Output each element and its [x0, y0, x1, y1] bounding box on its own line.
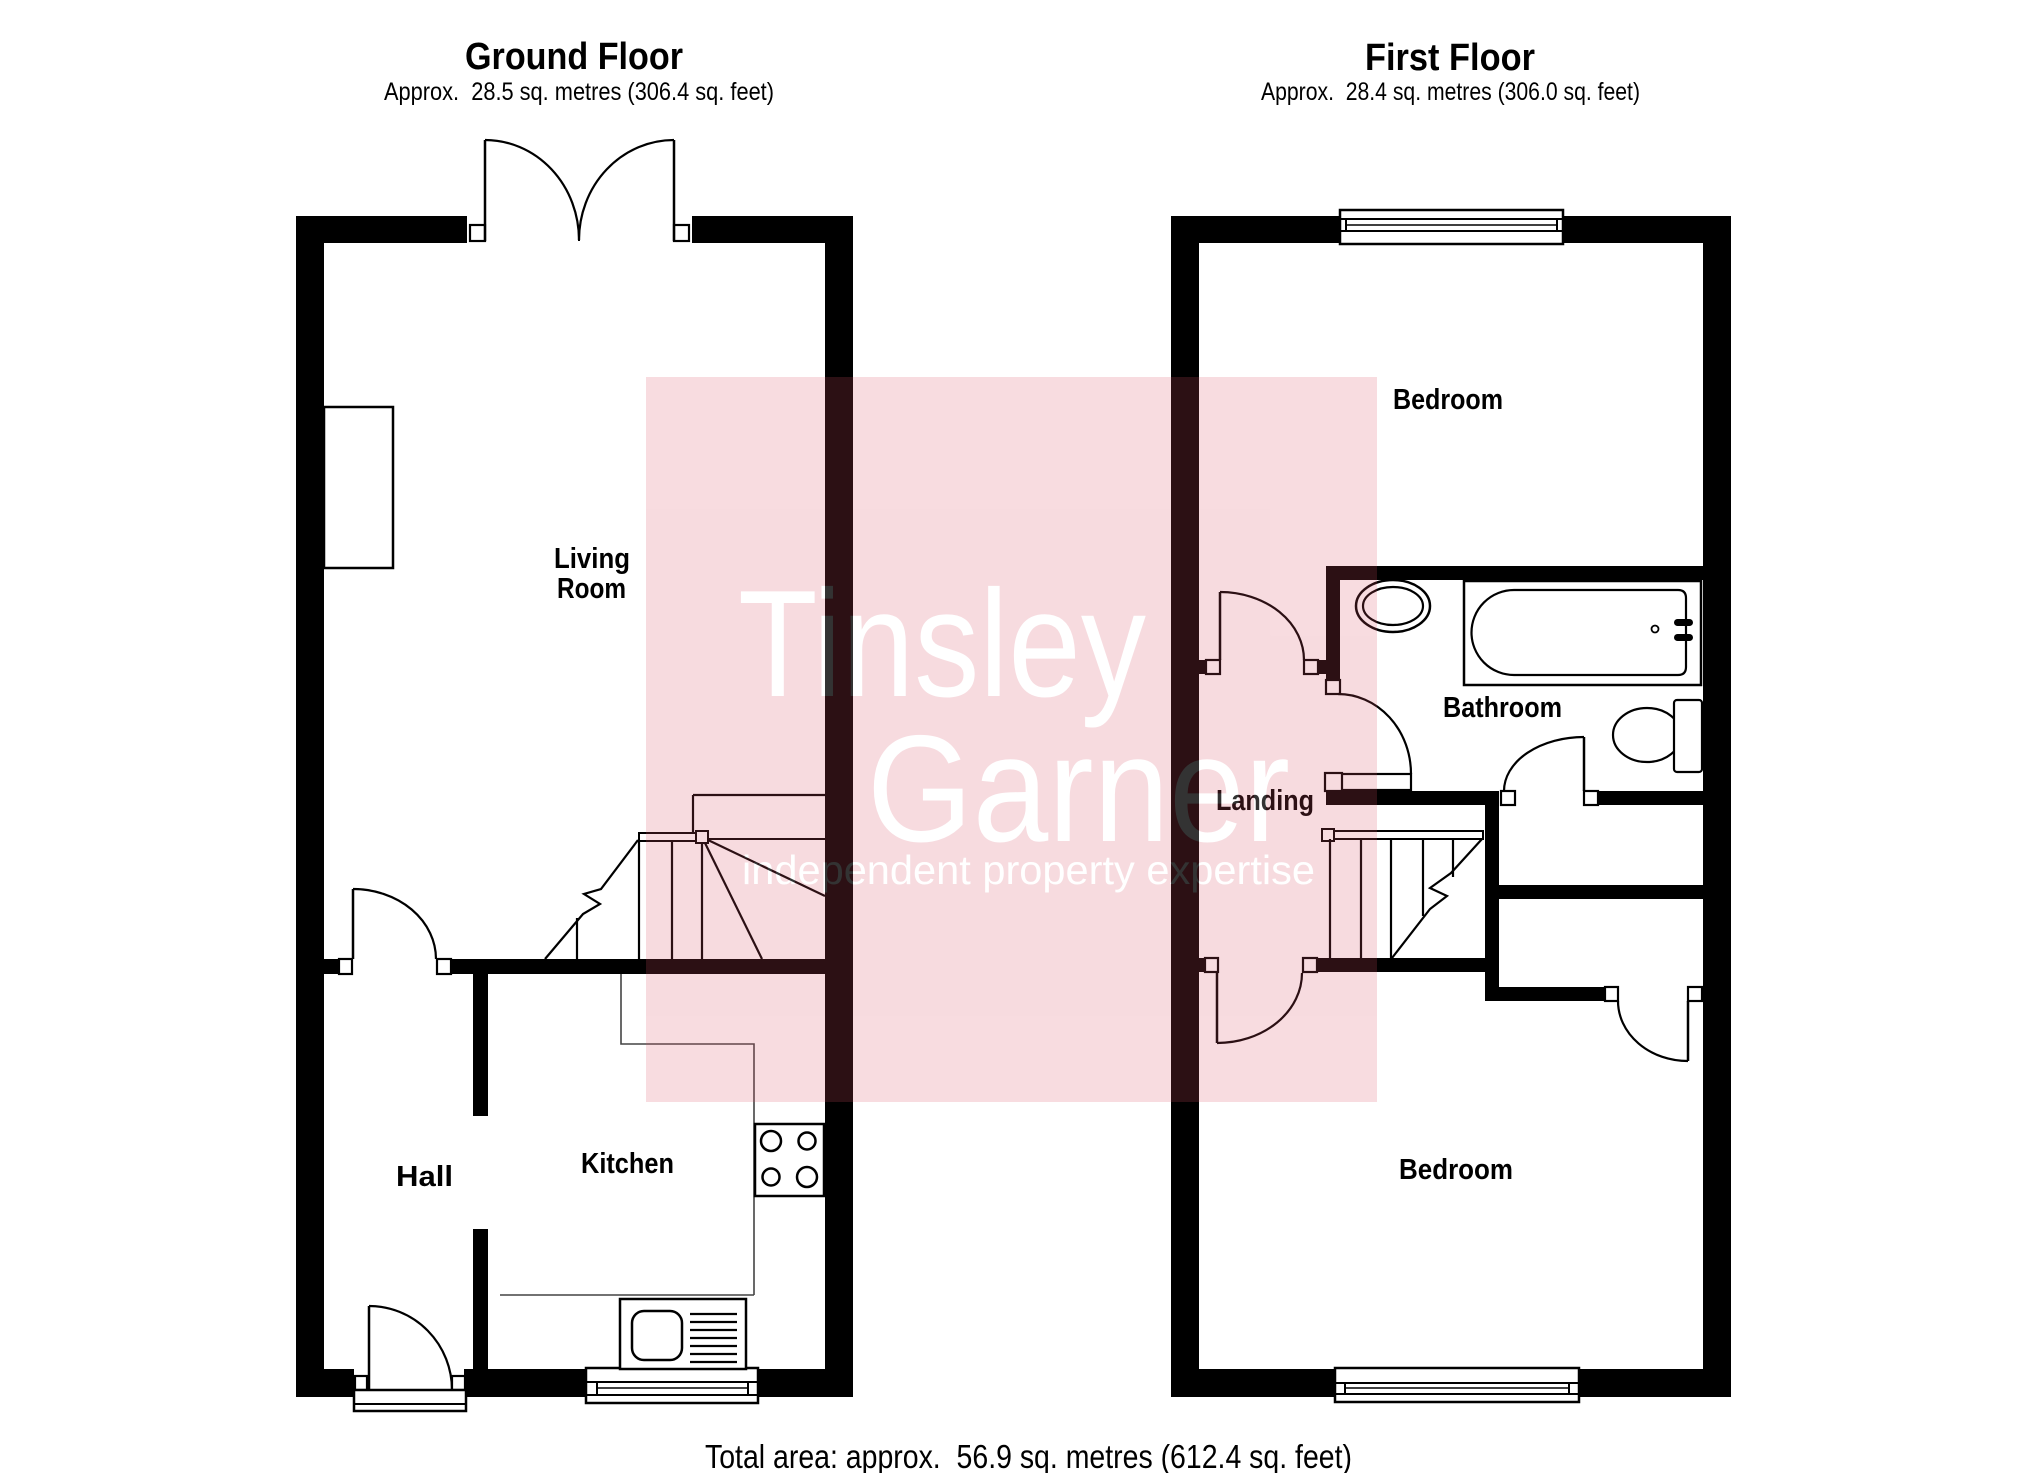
svg-text:Living: Living	[554, 543, 630, 575]
svg-text:Bedroom: Bedroom	[1393, 384, 1503, 416]
svg-text:Kitchen: Kitchen	[581, 1148, 674, 1180]
svg-text:Ground Floor: Ground Floor	[465, 36, 683, 78]
svg-text:independent property expertise: independent property expertise	[742, 847, 1315, 893]
svg-text:Room: Room	[557, 573, 626, 605]
svg-text:Hall: Hall	[396, 1161, 453, 1193]
svg-text:Bedroom: Bedroom	[1399, 1154, 1513, 1186]
svg-text:Approx. 28.5 sq. metres (306.: Approx. 28.5 sq. metres (306.4 sq. feet)	[384, 78, 774, 106]
svg-text:Bathroom: Bathroom	[1443, 692, 1562, 724]
svg-text:Approx. 28.4 sq. metres (306.: Approx. 28.4 sq. metres (306.0 sq. feet)	[1261, 78, 1640, 106]
svg-text:Total area: approx. 56.9 sq.: Total area: approx. 56.9 sq. metres (612…	[705, 1438, 1352, 1473]
svg-text:First Floor: First Floor	[1365, 37, 1535, 79]
